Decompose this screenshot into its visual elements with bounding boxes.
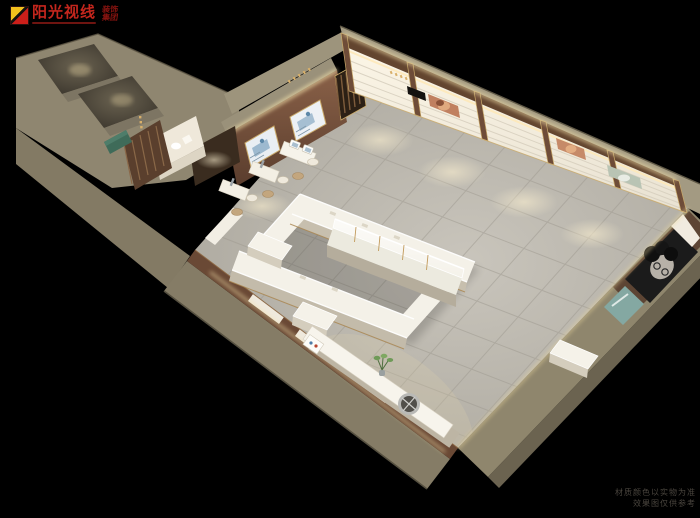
- sunvision-diamond-logo-icon: [11, 7, 28, 24]
- brand-name: 阳光视线: [32, 5, 96, 20]
- brand-suffix: 装饰 集团: [102, 6, 118, 23]
- disclaimer-line-1: 材质颜色以实物为准: [615, 487, 696, 498]
- disclaimer-text: 材质颜色以实物为准 效果图仅供参考: [615, 487, 696, 509]
- disclaimer-line-2: 效果图仅供参考: [615, 498, 696, 509]
- store-3d-render: [0, 0, 700, 518]
- watermark-logo: 阳光视线 装饰 集团: [11, 5, 118, 24]
- brand-tagline-bar: [32, 22, 96, 24]
- render-canvas: 阳光视线 装饰 集团 材质颜色以实物为准 效果图仅供参考: [0, 0, 700, 518]
- wash-basin: [398, 393, 420, 415]
- brand-suffix-line-2: 集团: [101, 14, 118, 22]
